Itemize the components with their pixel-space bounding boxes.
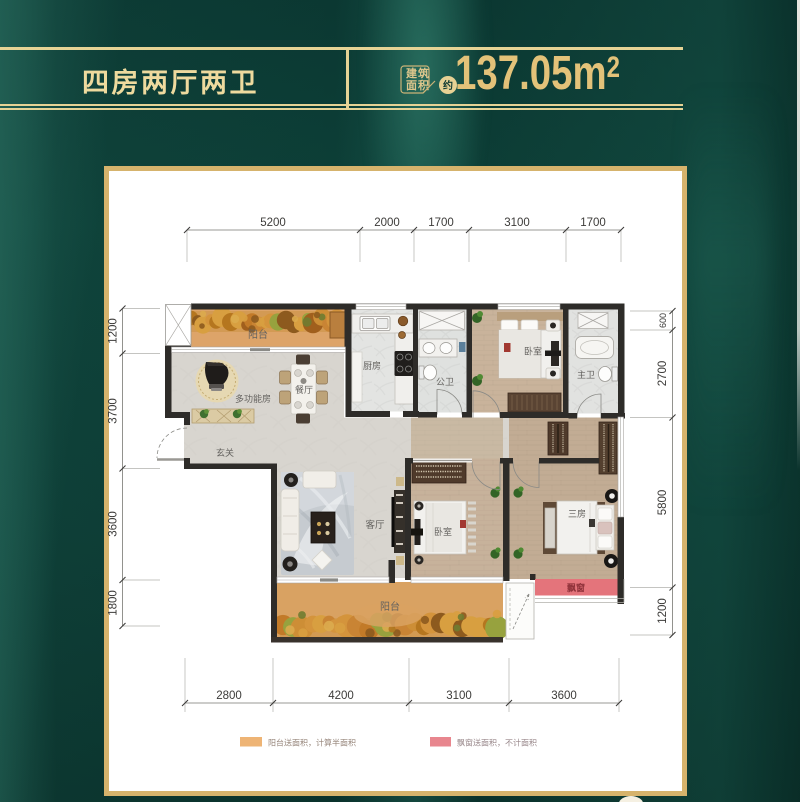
svg-text:3700: 3700 <box>108 398 120 424</box>
svg-text:阳台: 阳台 <box>248 328 268 341</box>
svg-text:多功能房: 多功能房 <box>235 393 271 404</box>
svg-text:1200: 1200 <box>657 598 669 624</box>
svg-text:公卫: 公卫 <box>436 377 454 387</box>
svg-text:3600: 3600 <box>108 511 120 537</box>
svg-text:厨房: 厨房 <box>363 360 381 371</box>
svg-text:3600: 3600 <box>551 690 577 702</box>
svg-text:阳台送面积，计算半面积: 阳台送面积，计算半面积 <box>268 738 356 748</box>
svg-text:4200: 4200 <box>328 690 354 702</box>
svg-text:2800: 2800 <box>216 690 242 702</box>
svg-text:2000: 2000 <box>374 217 400 229</box>
svg-text:5800: 5800 <box>657 490 669 516</box>
svg-text:约: 约 <box>443 79 453 92</box>
svg-text:1200: 1200 <box>108 318 120 344</box>
svg-text:卧室: 卧室 <box>434 526 452 537</box>
svg-text:飘窗: 飘窗 <box>567 582 585 593</box>
svg-text:1700: 1700 <box>580 217 606 229</box>
svg-text:3100: 3100 <box>504 217 530 229</box>
svg-text:5200: 5200 <box>260 217 286 229</box>
svg-text:1700: 1700 <box>428 217 454 229</box>
svg-text:3100: 3100 <box>446 690 472 702</box>
svg-text:主卫: 主卫 <box>577 369 595 380</box>
svg-text:建筑: 建筑 <box>406 66 430 80</box>
svg-text:2700: 2700 <box>657 361 669 387</box>
svg-text:餐厅: 餐厅 <box>295 384 313 395</box>
svg-text:卧室: 卧室 <box>524 346 542 357</box>
svg-text:玄关: 玄关 <box>216 447 234 458</box>
svg-text:阳台: 阳台 <box>380 600 400 613</box>
svg-text:1800: 1800 <box>108 590 120 616</box>
svg-text:飘窗送面积，不计面积: 飘窗送面积，不计面积 <box>457 738 537 748</box>
svg-text:三房: 三房 <box>568 508 586 519</box>
svg-text:600: 600 <box>658 313 668 328</box>
svg-text:客厅: 客厅 <box>365 519 385 531</box>
